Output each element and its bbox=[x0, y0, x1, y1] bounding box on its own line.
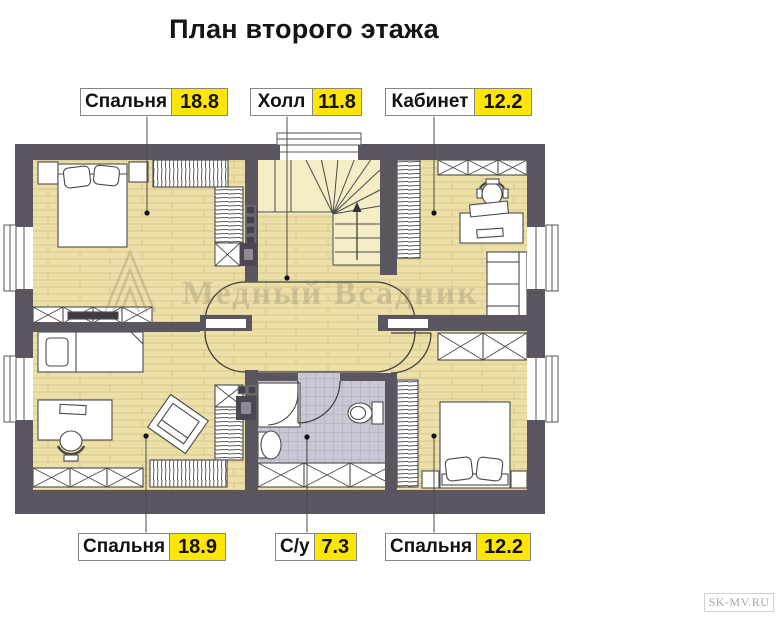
double-bed bbox=[440, 402, 510, 488]
window-right-upper bbox=[527, 225, 558, 291]
wall-bathroom-east bbox=[385, 373, 397, 490]
page-title: План второго этажа bbox=[168, 14, 440, 45]
site-credit: SK-MV.RU bbox=[704, 593, 774, 612]
room-label-hall: Холл 11.8 bbox=[250, 88, 362, 116]
wall-bedrooms-left-divider bbox=[33, 322, 200, 332]
nightstand bbox=[511, 471, 527, 488]
tv-shelf bbox=[68, 312, 118, 319]
wall-bathroom-north bbox=[248, 373, 298, 381]
shower bbox=[258, 383, 300, 427]
floor-plan-page: Медный Всадник План второго этажа Спальн… bbox=[0, 0, 782, 628]
closet-strip bbox=[33, 468, 143, 487]
room-area-badge: 18.9 bbox=[169, 534, 225, 560]
window-left-upper bbox=[4, 225, 33, 291]
room-area-badge: 11.8 bbox=[312, 89, 361, 115]
double-bed bbox=[58, 164, 127, 247]
wardrobe bbox=[397, 380, 418, 487]
toilet bbox=[348, 402, 383, 424]
room-name: С/у bbox=[276, 534, 314, 560]
sink bbox=[258, 431, 281, 459]
wardrobe bbox=[215, 187, 243, 243]
desk bbox=[460, 213, 523, 243]
flue-unit-upper bbox=[215, 243, 257, 266]
wardrobe bbox=[150, 460, 227, 487]
closet-strip bbox=[33, 307, 152, 323]
room-name: Спальня bbox=[81, 89, 171, 115]
nightstand bbox=[422, 471, 439, 488]
wardrobe bbox=[397, 160, 420, 258]
closet-strip bbox=[438, 160, 527, 175]
window-top-stairs bbox=[277, 133, 361, 160]
room-label-bedroom-bottom-right: Спальня 12.2 bbox=[385, 533, 531, 561]
room-area-badge: 12.2 bbox=[474, 89, 531, 115]
window-right-lower bbox=[527, 356, 558, 422]
nightstand bbox=[38, 162, 58, 184]
room-name: Кабинет bbox=[386, 89, 474, 115]
wardrobe bbox=[153, 160, 228, 187]
closet-strip bbox=[438, 333, 527, 360]
room-area-badge: 18.8 bbox=[171, 89, 227, 115]
nightstand bbox=[129, 162, 148, 182]
watermark-text: Медный Всадник bbox=[182, 275, 479, 312]
window-left-lower bbox=[4, 356, 33, 422]
room-area-badge: 7.3 bbox=[314, 534, 356, 560]
room-label-bathroom: С/у 7.3 bbox=[275, 533, 357, 561]
room-name: Холл bbox=[251, 89, 312, 115]
wall-stairs-office-divider bbox=[380, 158, 397, 275]
room-label-office: Кабинет 12.2 bbox=[385, 88, 532, 116]
room-name: Спальня bbox=[79, 534, 169, 560]
room-name: Спальня bbox=[386, 534, 476, 560]
room-label-bedroom-top-left: Спальня 18.8 bbox=[80, 88, 228, 116]
sofa bbox=[487, 252, 527, 316]
bathroom-cabinets bbox=[258, 463, 397, 487]
single-bed bbox=[38, 332, 143, 372]
flue-unit-lower bbox=[236, 386, 256, 420]
room-area-badge: 12.2 bbox=[476, 534, 530, 560]
room-label-bedroom-bottom-left: Спальня 18.9 bbox=[78, 533, 226, 561]
